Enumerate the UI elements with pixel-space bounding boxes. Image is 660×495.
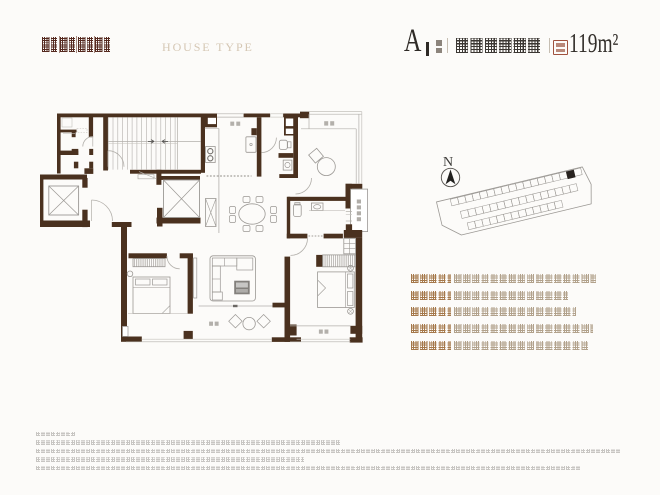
svg-text:N: N (443, 155, 453, 170)
